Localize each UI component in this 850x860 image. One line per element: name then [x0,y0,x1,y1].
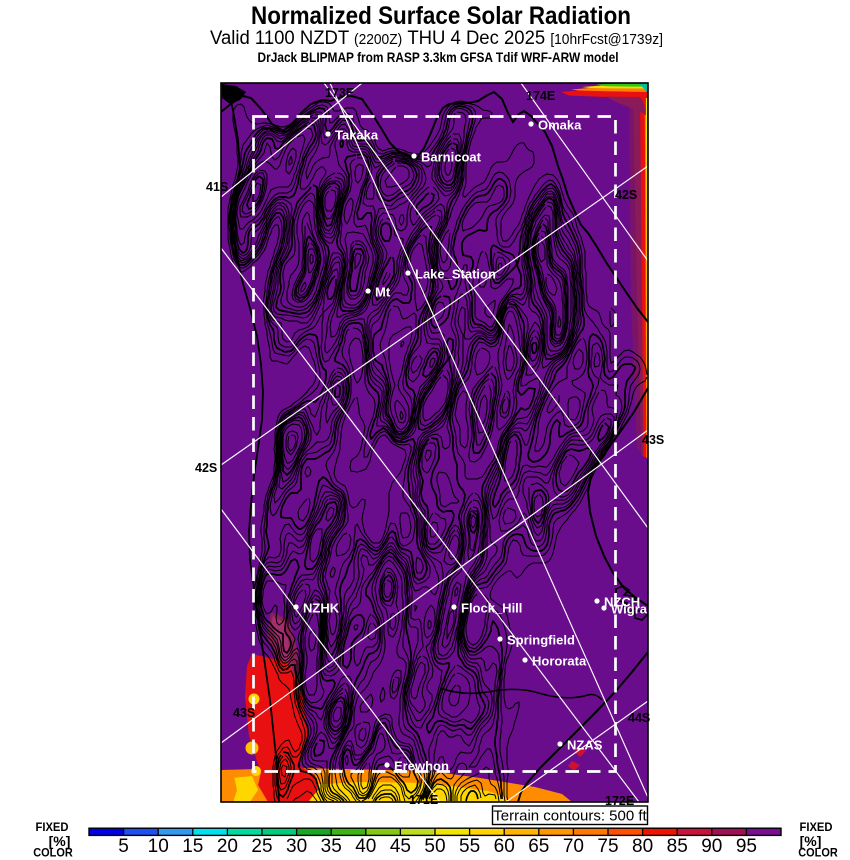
svg-text:45: 45 [390,836,411,857]
svg-text:Hororata: Hororata [532,654,587,669]
svg-text:60: 60 [494,836,515,857]
svg-text:65: 65 [528,836,549,857]
svg-text:15: 15 [182,836,203,857]
svg-text:50: 50 [424,836,445,857]
svg-text:90: 90 [701,836,722,857]
svg-text:5: 5 [118,836,129,857]
svg-text:Lake_Station: Lake_Station [415,267,496,282]
svg-text:20: 20 [217,836,238,857]
svg-text:Takaka: Takaka [335,128,379,143]
svg-text:55: 55 [459,836,480,857]
svg-text:80: 80 [632,836,653,857]
svg-text:NZAS: NZAS [567,738,603,753]
svg-text:25: 25 [251,836,272,857]
svg-text:44S: 44S [628,711,650,725]
svg-text:FIXED: FIXED [800,820,833,834]
svg-text:COLOR: COLOR [798,846,838,860]
svg-text:Flock_Hill: Flock_Hill [461,601,522,616]
svg-text:10: 10 [148,836,169,857]
svg-text:42S: 42S [615,188,637,202]
svg-text:95: 95 [736,836,757,857]
svg-text:Barnicoat: Barnicoat [421,150,482,165]
svg-text:35: 35 [321,836,342,857]
svg-text:Omaka: Omaka [538,118,582,133]
svg-text:30: 30 [286,836,307,857]
svg-text:171E: 171E [409,793,438,807]
svg-text:174E: 174E [526,89,555,103]
svg-text:42S: 42S [195,461,217,475]
svg-text:75: 75 [597,836,618,857]
svg-text:41S: 41S [206,180,228,194]
svg-text:Erewhon: Erewhon [394,759,449,774]
svg-text:Terrain contours: 500 ft: Terrain contours: 500 ft [493,808,647,825]
svg-text:70: 70 [563,836,584,857]
svg-text:40: 40 [355,836,376,857]
svg-text:COLOR: COLOR [33,846,73,860]
svg-text:Springfield: Springfield [507,633,575,648]
svg-text:NZHK: NZHK [303,601,340,616]
svg-text:DrJack BLIPMAP from RASP 3.3km: DrJack BLIPMAP from RASP 3.3km GFSA Tdif… [258,49,619,65]
svg-text:Mt: Mt [375,285,391,300]
svg-text:43S: 43S [642,433,664,447]
svg-text:Normalized Surface Solar Radia: Normalized Surface Solar Radiation [251,2,631,30]
svg-text:43S: 43S [233,706,255,720]
svg-text:85: 85 [667,836,688,857]
svg-text:FIXED: FIXED [36,820,69,834]
svg-text:173E: 173E [325,86,354,100]
svg-text:Valid 1100 NZDT (2200Z) THU 4: Valid 1100 NZDT (2200Z) THU 4 Dec 2025 [… [210,28,663,50]
